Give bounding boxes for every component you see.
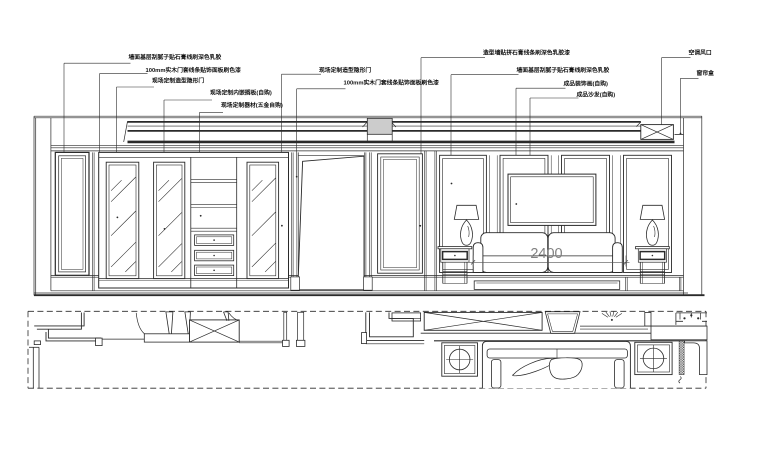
svg-text:成品装饰画(自购): 成品装饰画(自购) <box>564 80 609 88</box>
svg-text:成品沙发(自购): 成品沙发(自购) <box>577 91 616 99</box>
svg-text:现场定制造型隐形门: 现场定制造型隐形门 <box>319 66 371 74</box>
svg-text:现场定制造型隐形门: 现场定制造型隐形门 <box>152 76 204 84</box>
svg-text:墙面基层刮腻子贴石膏线刷深色乳胶: 墙面基层刮腻子贴石膏线刷深色乳胶 <box>129 53 222 61</box>
svg-text:2400: 2400 <box>530 246 562 262</box>
svg-text:墙面基层刮腻子贴石膏线刷深色乳胶: 墙面基层刮腻子贴石膏线刷深色乳胶 <box>517 66 610 74</box>
svg-text:造型墙贴拼石膏线条刷深色乳胶漆: 造型墙贴拼石膏线条刷深色乳胶漆 <box>483 49 570 57</box>
svg-text:空调风口: 空调风口 <box>689 49 712 57</box>
svg-text:窗帘盒: 窗帘盒 <box>697 69 715 77</box>
svg-text:现场定制内嵌搁板(自购): 现场定制内嵌搁板(自购) <box>210 89 272 97</box>
svg-text:现场定制器材(五金自购): 现场定制器材(五金自购) <box>221 101 283 109</box>
svg-text:100mm实木门套线条贴饰面板刷色漆: 100mm实木门套线条贴饰面板刷色漆 <box>146 66 242 74</box>
svg-text:100mm实木门套线条贴饰面板刷色漆: 100mm实木门套线条贴饰面板刷色漆 <box>344 79 440 87</box>
